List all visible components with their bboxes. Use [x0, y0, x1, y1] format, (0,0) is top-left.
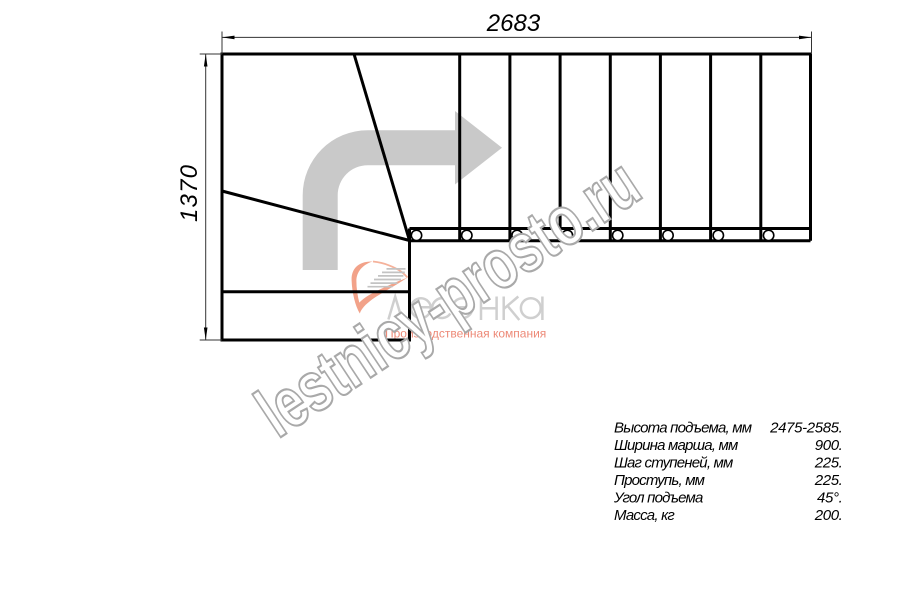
- svg-text:Высота подъема, мм: Высота подъема, мм: [614, 420, 752, 437]
- svg-text:Проступь, мм: Проступь, мм: [614, 472, 705, 489]
- svg-text:900.: 900.: [815, 437, 843, 454]
- svg-text:225.: 225.: [814, 455, 843, 472]
- svg-text:200.: 200.: [814, 507, 843, 524]
- svg-text:Ширина марша, мм: Ширина марша, мм: [614, 437, 738, 454]
- svg-text:Угол подъема: Угол подъема: [613, 490, 703, 507]
- svg-text:225.: 225.: [814, 472, 843, 489]
- svg-text:2475-2585.: 2475-2585.: [769, 420, 842, 437]
- svg-text:2683: 2683: [486, 10, 541, 37]
- svg-text:1370: 1370: [176, 164, 203, 222]
- svg-text:Шаг ступеней, мм: Шаг ступеней, мм: [614, 455, 733, 472]
- svg-text:Масса, кг: Масса, кг: [614, 507, 675, 524]
- svg-text:45°.: 45°.: [817, 490, 842, 507]
